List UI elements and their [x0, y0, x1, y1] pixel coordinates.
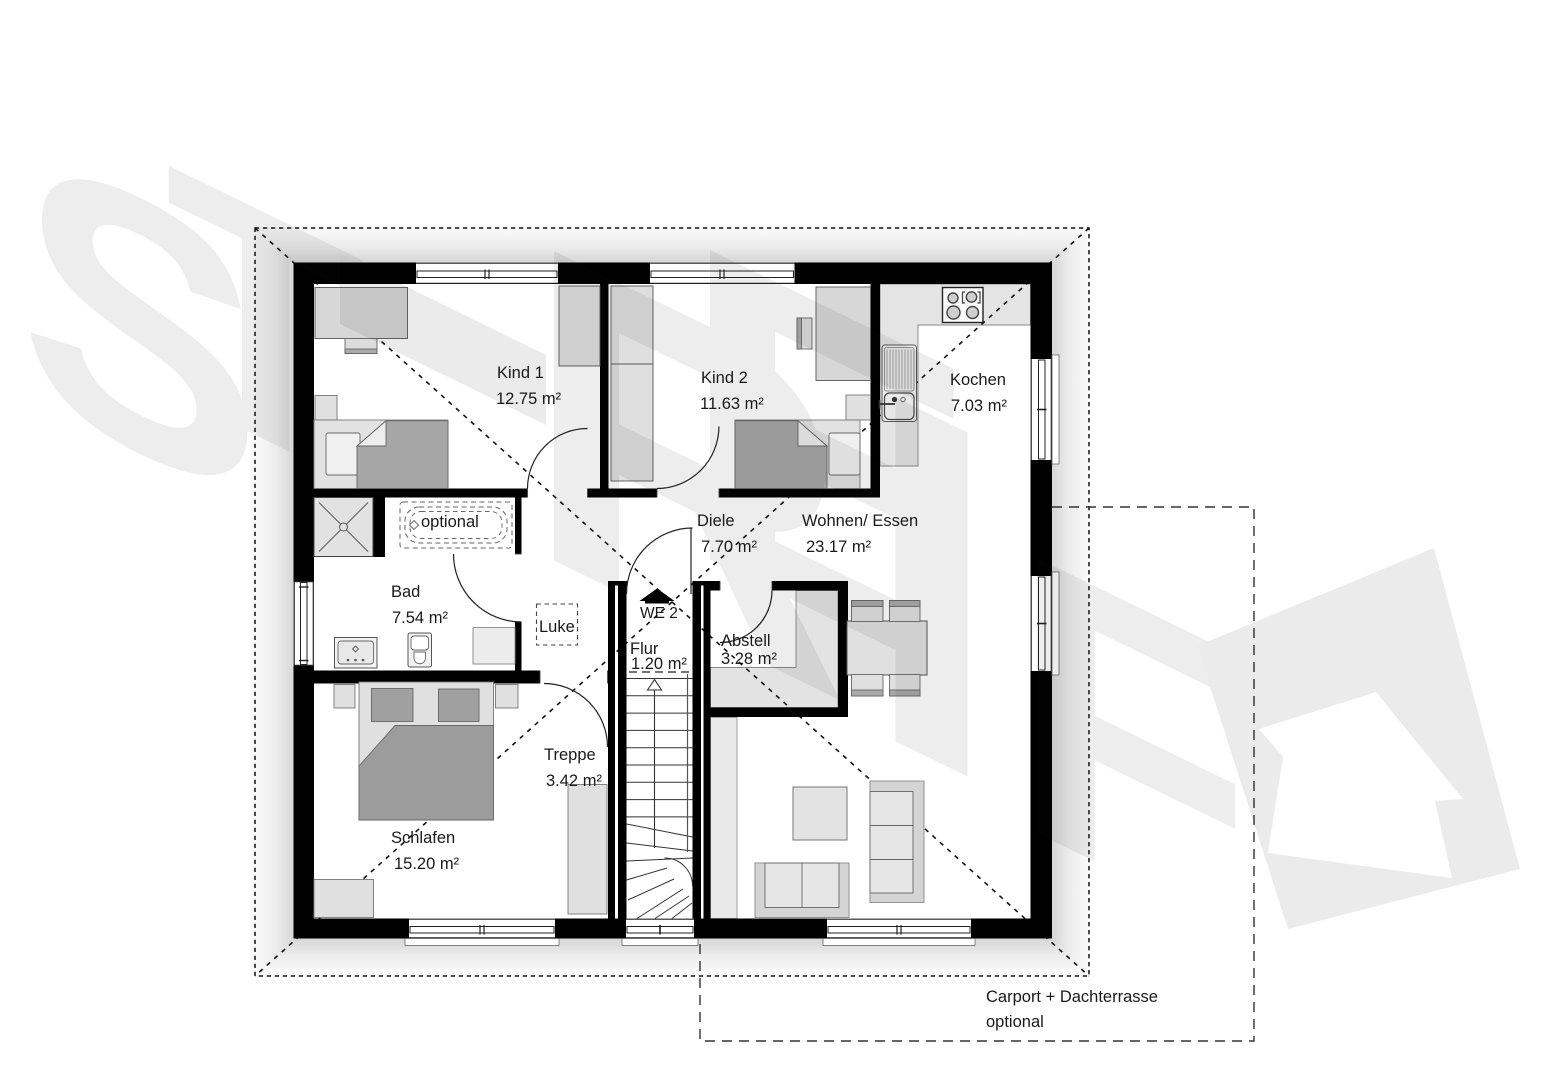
svg-text:Bad: Bad — [391, 583, 420, 601]
svg-text:15.20 m²: 15.20 m² — [394, 855, 460, 873]
svg-text:Schlafen: Schlafen — [391, 829, 455, 847]
svg-text:I: I — [862, 273, 1001, 899]
svg-text:optional: optional — [421, 513, 479, 531]
svg-text:Carport + Dachterrasse: Carport + Dachterrasse — [986, 988, 1158, 1006]
svg-text:3.42 m²: 3.42 m² — [546, 772, 602, 790]
svg-text:Treppe: Treppe — [544, 746, 596, 764]
svg-text:7.54 m²: 7.54 m² — [392, 609, 448, 627]
svg-text:optional: optional — [986, 1013, 1044, 1031]
